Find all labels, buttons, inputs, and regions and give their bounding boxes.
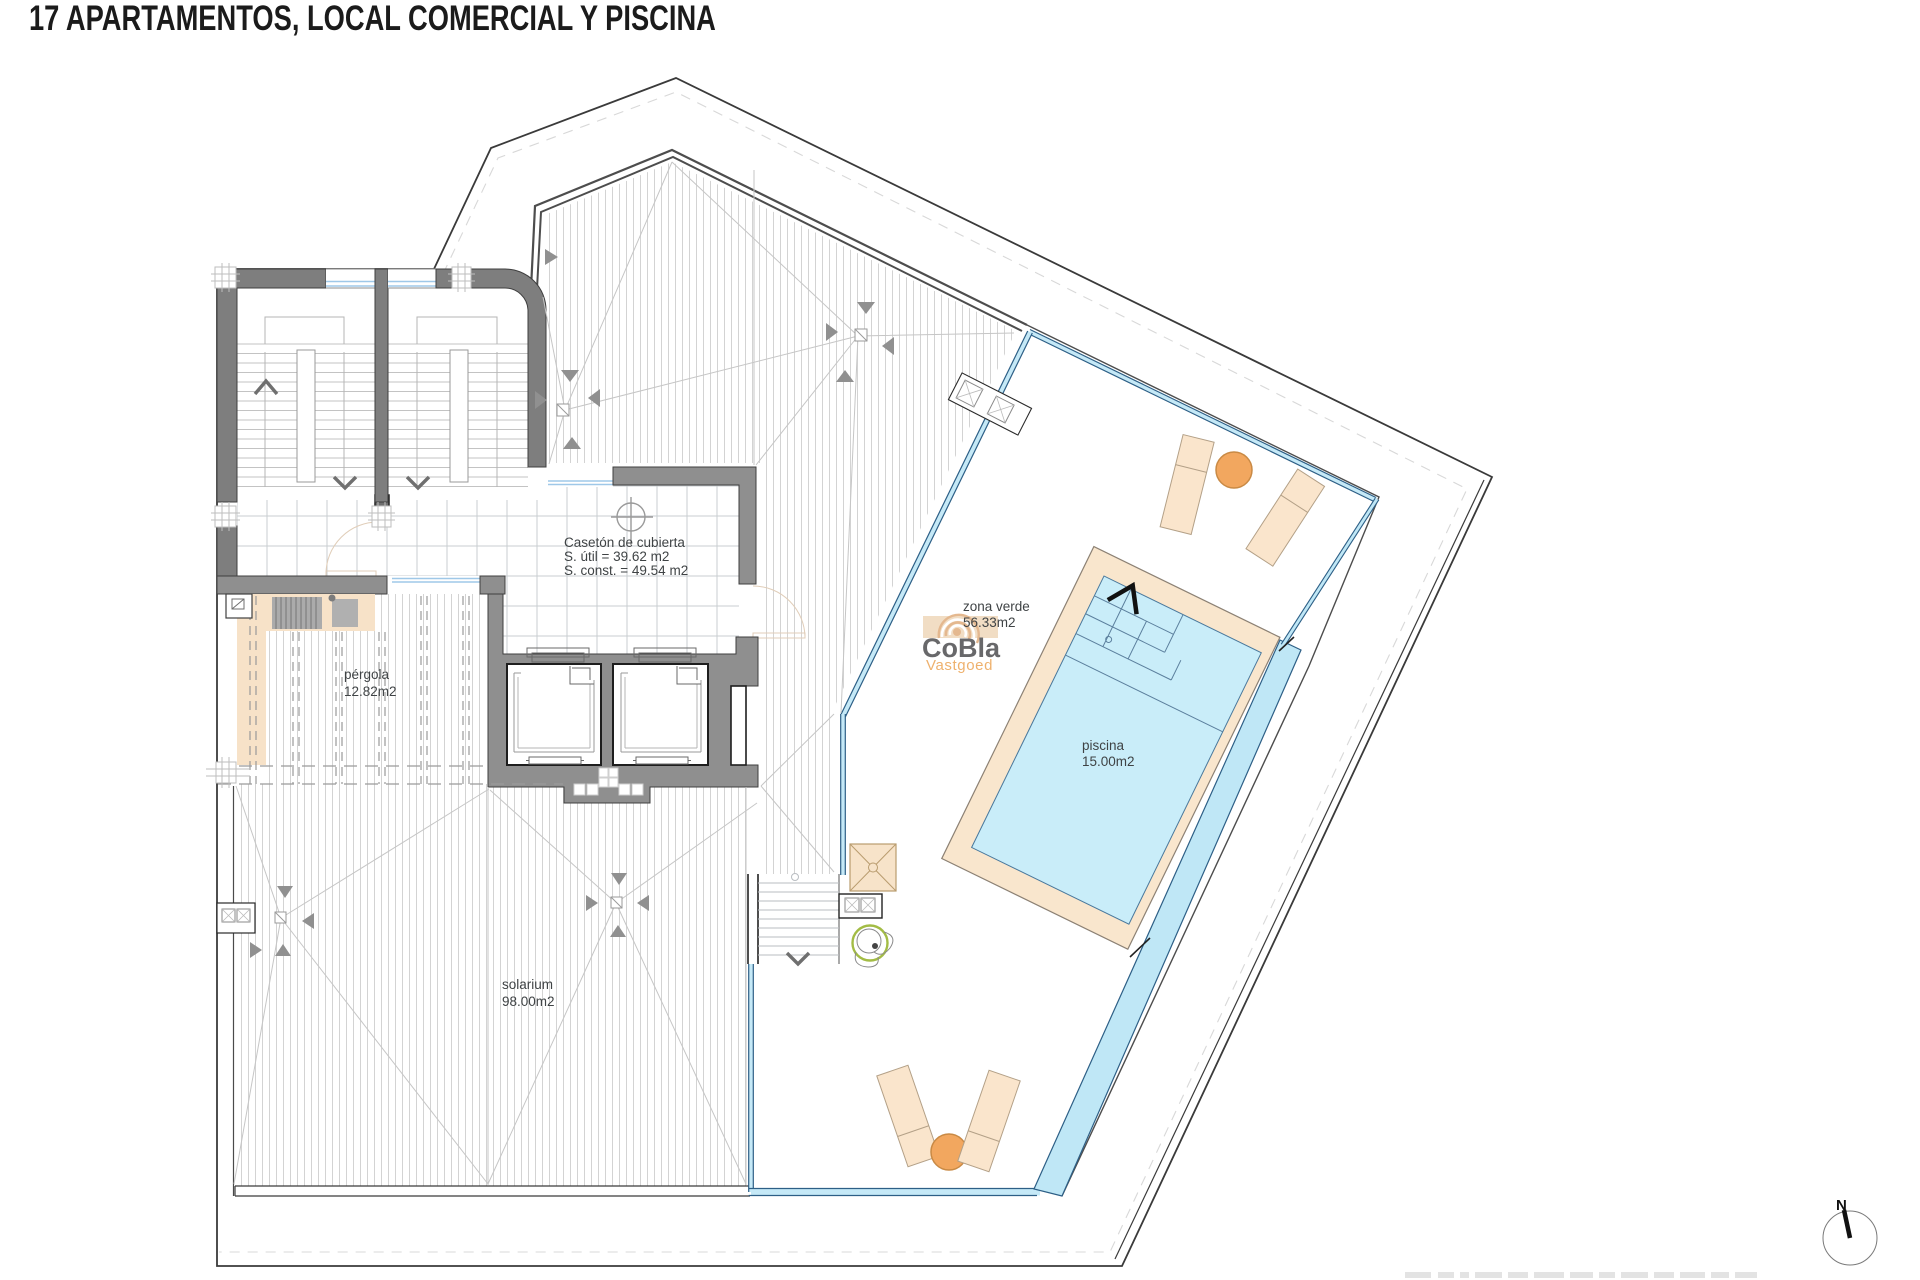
svg-text:Vastgoed: Vastgoed [926,657,993,674]
svg-text:solarium: solarium [502,977,553,992]
svg-text:15.00m2: 15.00m2 [1082,754,1135,769]
svg-text:S. útil = 39.62 m2: S. útil = 39.62 m2 [564,549,669,564]
svg-text:56.33m2: 56.33m2 [963,615,1016,630]
svg-text:Casetón de cubierta: Casetón de cubierta [564,535,685,550]
svg-text:12.82m2: 12.82m2 [344,684,397,699]
svg-text:N: N [1836,1197,1847,1214]
svg-text:pérgola: pérgola [344,667,390,682]
svg-text:piscina: piscina [1082,738,1125,753]
svg-text:98.00m2: 98.00m2 [502,994,555,1009]
svg-text:zona verde: zona verde [963,599,1030,614]
svg-text:S. const. = 49.54 m2: S. const. = 49.54 m2 [564,563,688,578]
svg-text:17 APARTAMENTOS, LOCAL COMERCI: 17 APARTAMENTOS, LOCAL COMERCIAL Y PISCI… [29,0,716,38]
